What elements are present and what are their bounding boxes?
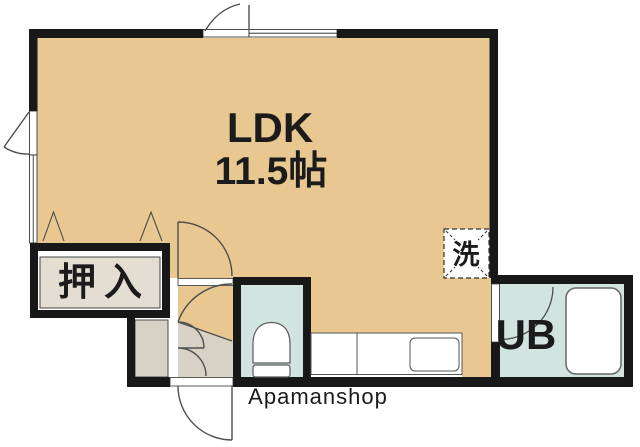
entry-door-swing [178,386,232,440]
bathtub-icon [566,288,621,374]
wall-entrance-left [127,318,135,387]
floorplan-canvas: LDK 11.5帖 押入 UB 洗 Apamanshop [0,0,640,447]
wall-left-upper [29,29,38,111]
left-door-swing [4,112,29,154]
kitchen-counter [311,333,462,375]
laundry-label: 洗 [453,240,480,270]
ldk-floor-lower [311,278,491,333]
ldk-floor-counter-side [462,333,491,377]
bath-label: UB [496,311,557,358]
toilet-room [233,277,311,377]
wall-top-left [29,29,203,38]
top-door-swing [205,4,249,31]
toilet-tank-icon [253,365,290,377]
watermark-text: Apamanshop [248,384,388,409]
toilet-icon [253,323,290,364]
kitchen-sink-icon [410,338,459,371]
entry-door-opening [170,378,233,387]
left-door-opening [30,111,38,155]
closet-label: 押入 [58,262,150,304]
wall-right [490,29,499,278]
shoe-cabinet [135,320,168,377]
floorplan: LDK 11.5帖 押入 UB 洗 Apamanshop [0,0,640,447]
wall-top-right [337,29,498,38]
wall-bottom-left [127,377,170,387]
ldk-label: LDK [227,104,313,151]
top-door-opening [203,30,249,38]
ldk-size-label: 11.5帖 [215,150,328,193]
